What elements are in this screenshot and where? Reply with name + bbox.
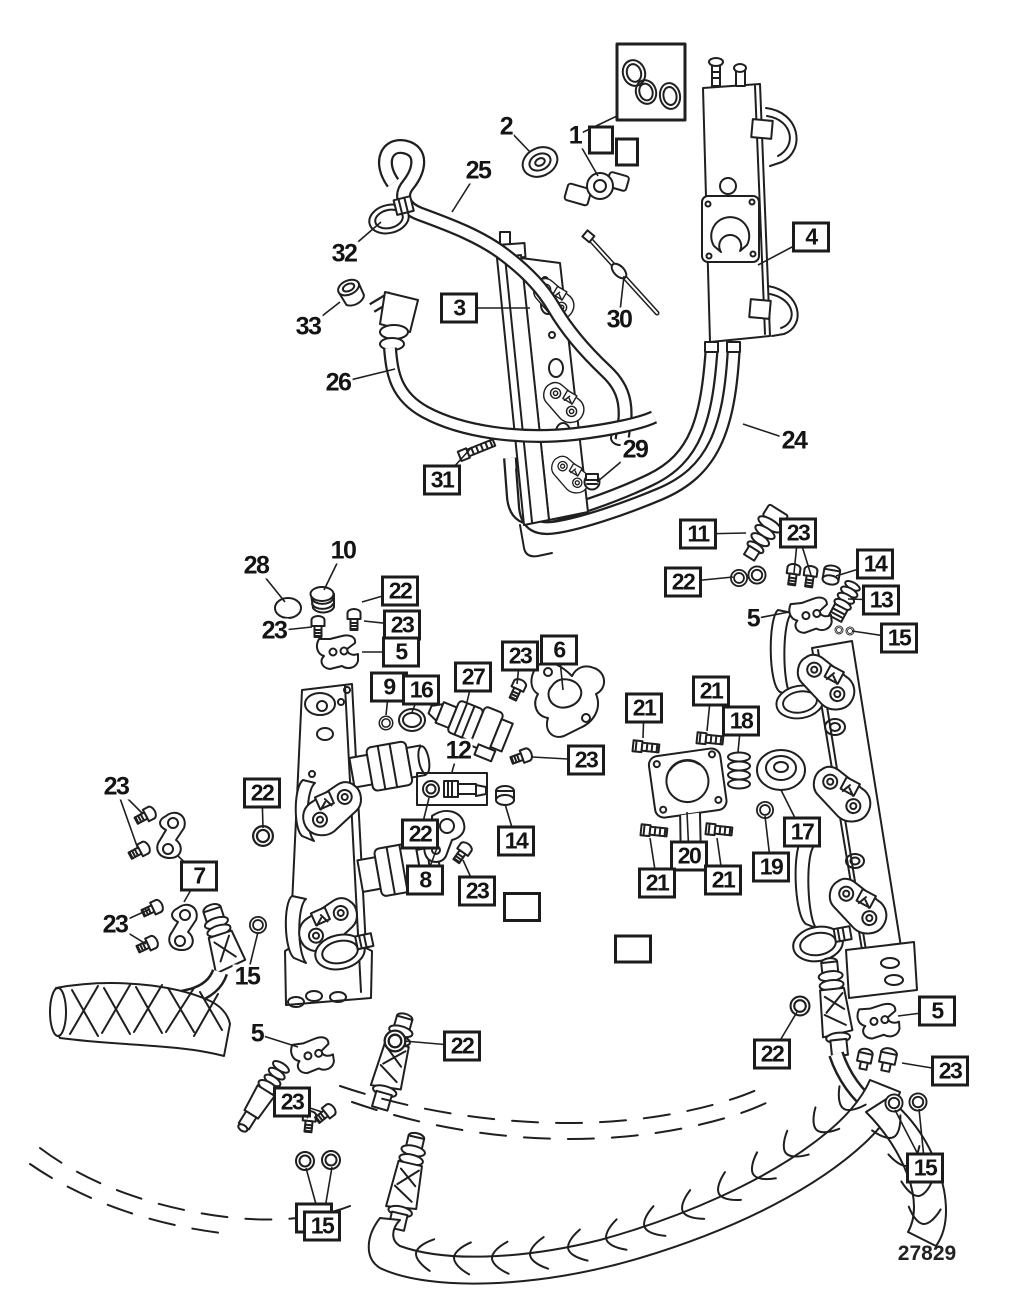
callout-2: 2: [498, 115, 514, 140]
callout-17: 17: [783, 817, 821, 848]
callout-empty-box: [614, 935, 652, 964]
parts-diagram-page: 2125323334263031292411231422135152810222…: [0, 0, 1012, 1308]
callout-10: 10: [329, 539, 358, 564]
callout-31: 31: [423, 465, 461, 496]
callout-23: 23: [260, 619, 289, 644]
callout-5: 5: [745, 607, 761, 632]
callout-26: 26: [324, 371, 353, 396]
callout-empty-box: [503, 892, 541, 922]
callout-23: 23: [567, 745, 605, 776]
callout-23: 23: [273, 1087, 311, 1118]
callout-22: 22: [401, 819, 439, 850]
callout-5: 5: [382, 637, 420, 668]
callout-21: 21: [638, 868, 676, 899]
callout-25: 25: [464, 159, 493, 184]
callout-empty-box: [615, 138, 639, 167]
callout-22: 22: [753, 1039, 791, 1070]
callout-22: 22: [381, 576, 419, 607]
callout-14: 14: [856, 549, 894, 580]
callout-6: 6: [540, 635, 578, 666]
callout-24: 24: [780, 429, 809, 454]
callout-21: 21: [692, 676, 730, 707]
callout-8: 8: [406, 865, 444, 896]
callout-15: 15: [233, 965, 262, 990]
callout-layer: 2125323334263031292411231422135152810222…: [0, 0, 1012, 1308]
callout-1: 1: [567, 124, 583, 149]
callout-7: 7: [180, 861, 218, 892]
callout-12: 12: [444, 739, 473, 764]
diagram-number: 27829: [898, 1242, 956, 1266]
callout-22: 22: [664, 567, 702, 598]
callout-18: 18: [722, 706, 760, 737]
callout-23: 23: [779, 518, 817, 549]
callout-23: 23: [931, 1056, 969, 1087]
callout-15: 15: [906, 1153, 944, 1184]
callout-28: 28: [242, 554, 271, 579]
callout-23: 23: [501, 641, 539, 672]
callout-21: 21: [704, 865, 742, 896]
callout-23: 23: [101, 913, 130, 938]
callout-empty-box: [588, 126, 614, 155]
callout-21: 21: [625, 693, 663, 724]
callout-23: 23: [102, 775, 131, 800]
callout-22: 22: [243, 778, 281, 809]
callout-22: 22: [443, 1031, 481, 1062]
callout-23: 23: [458, 876, 496, 907]
callout-5: 5: [249, 1022, 265, 1047]
callout-32: 32: [330, 242, 359, 267]
callout-5: 5: [918, 996, 956, 1027]
callout-30: 30: [605, 308, 634, 333]
callout-3: 3: [440, 293, 478, 324]
callout-29: 29: [621, 438, 650, 463]
callout-14: 14: [497, 826, 535, 857]
callout-33: 33: [294, 315, 323, 340]
callout-15: 15: [303, 1211, 341, 1242]
callout-19: 19: [752, 852, 790, 883]
callout-15: 15: [880, 623, 918, 654]
callout-13: 13: [862, 585, 900, 616]
callout-11: 11: [679, 519, 717, 550]
callout-16: 16: [402, 675, 440, 706]
callout-4: 4: [792, 222, 830, 253]
callout-27: 27: [454, 662, 492, 693]
